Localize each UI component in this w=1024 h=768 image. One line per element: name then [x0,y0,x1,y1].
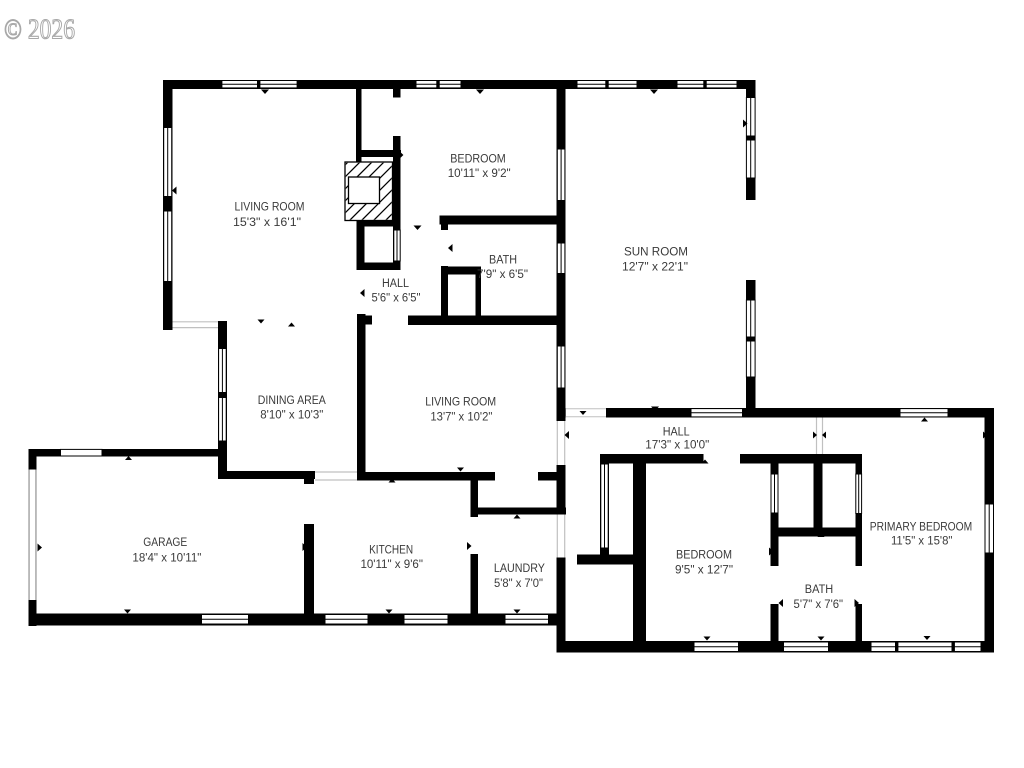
svg-text:LIVING ROOM: LIVING ROOM [235,200,305,214]
svg-text:10'11" x 9'6": 10'11" x 9'6" [360,557,423,571]
svg-text:PRIMARY BEDROOM: PRIMARY BEDROOM [870,520,973,534]
svg-text:5'6" x 6'5": 5'6" x 6'5" [372,291,421,305]
svg-text:12'7" x 22'1": 12'7" x 22'1" [622,260,688,274]
svg-text:5'7" x 7'6": 5'7" x 7'6" [794,597,844,611]
svg-text:BEDROOM: BEDROOM [450,152,506,166]
svg-text:11'5" x 15'8": 11'5" x 15'8" [891,533,953,547]
svg-text:9'5" x 12'7": 9'5" x 12'7" [675,563,733,577]
svg-text:HALL: HALL [382,276,409,290]
svg-text:© 2026: © 2026 [4,14,75,46]
svg-text:10'11" x 9'2": 10'11" x 9'2" [448,166,511,180]
svg-text:GARAGE: GARAGE [143,535,187,549]
svg-text:KITCHEN: KITCHEN [369,542,413,556]
svg-text:BATH: BATH [805,582,834,596]
svg-text:DINING AREA: DINING AREA [258,393,327,407]
svg-text:13'7" x 10'2": 13'7" x 10'2" [430,410,492,424]
svg-text:7'9" x 6'5": 7'9" x 6'5" [477,267,528,281]
svg-text:15'3" x 16'1": 15'3" x 16'1" [233,215,301,229]
svg-text:LIVING ROOM: LIVING ROOM [425,395,496,409]
svg-text:HALL: HALL [663,425,690,439]
svg-text:17'3" x 10'0": 17'3" x 10'0" [645,438,709,452]
svg-text:18'4" x 10'11": 18'4" x 10'11" [132,551,201,565]
svg-text:5'8" x 7'0": 5'8" x 7'0" [494,576,543,590]
svg-text:LAUNDRY: LAUNDRY [494,561,545,575]
svg-text:8'10" x 10'3": 8'10" x 10'3" [260,408,323,422]
svg-text:BATH: BATH [489,253,517,267]
svg-text:BEDROOM: BEDROOM [676,548,732,562]
svg-text:SUN ROOM: SUN ROOM [624,245,688,259]
